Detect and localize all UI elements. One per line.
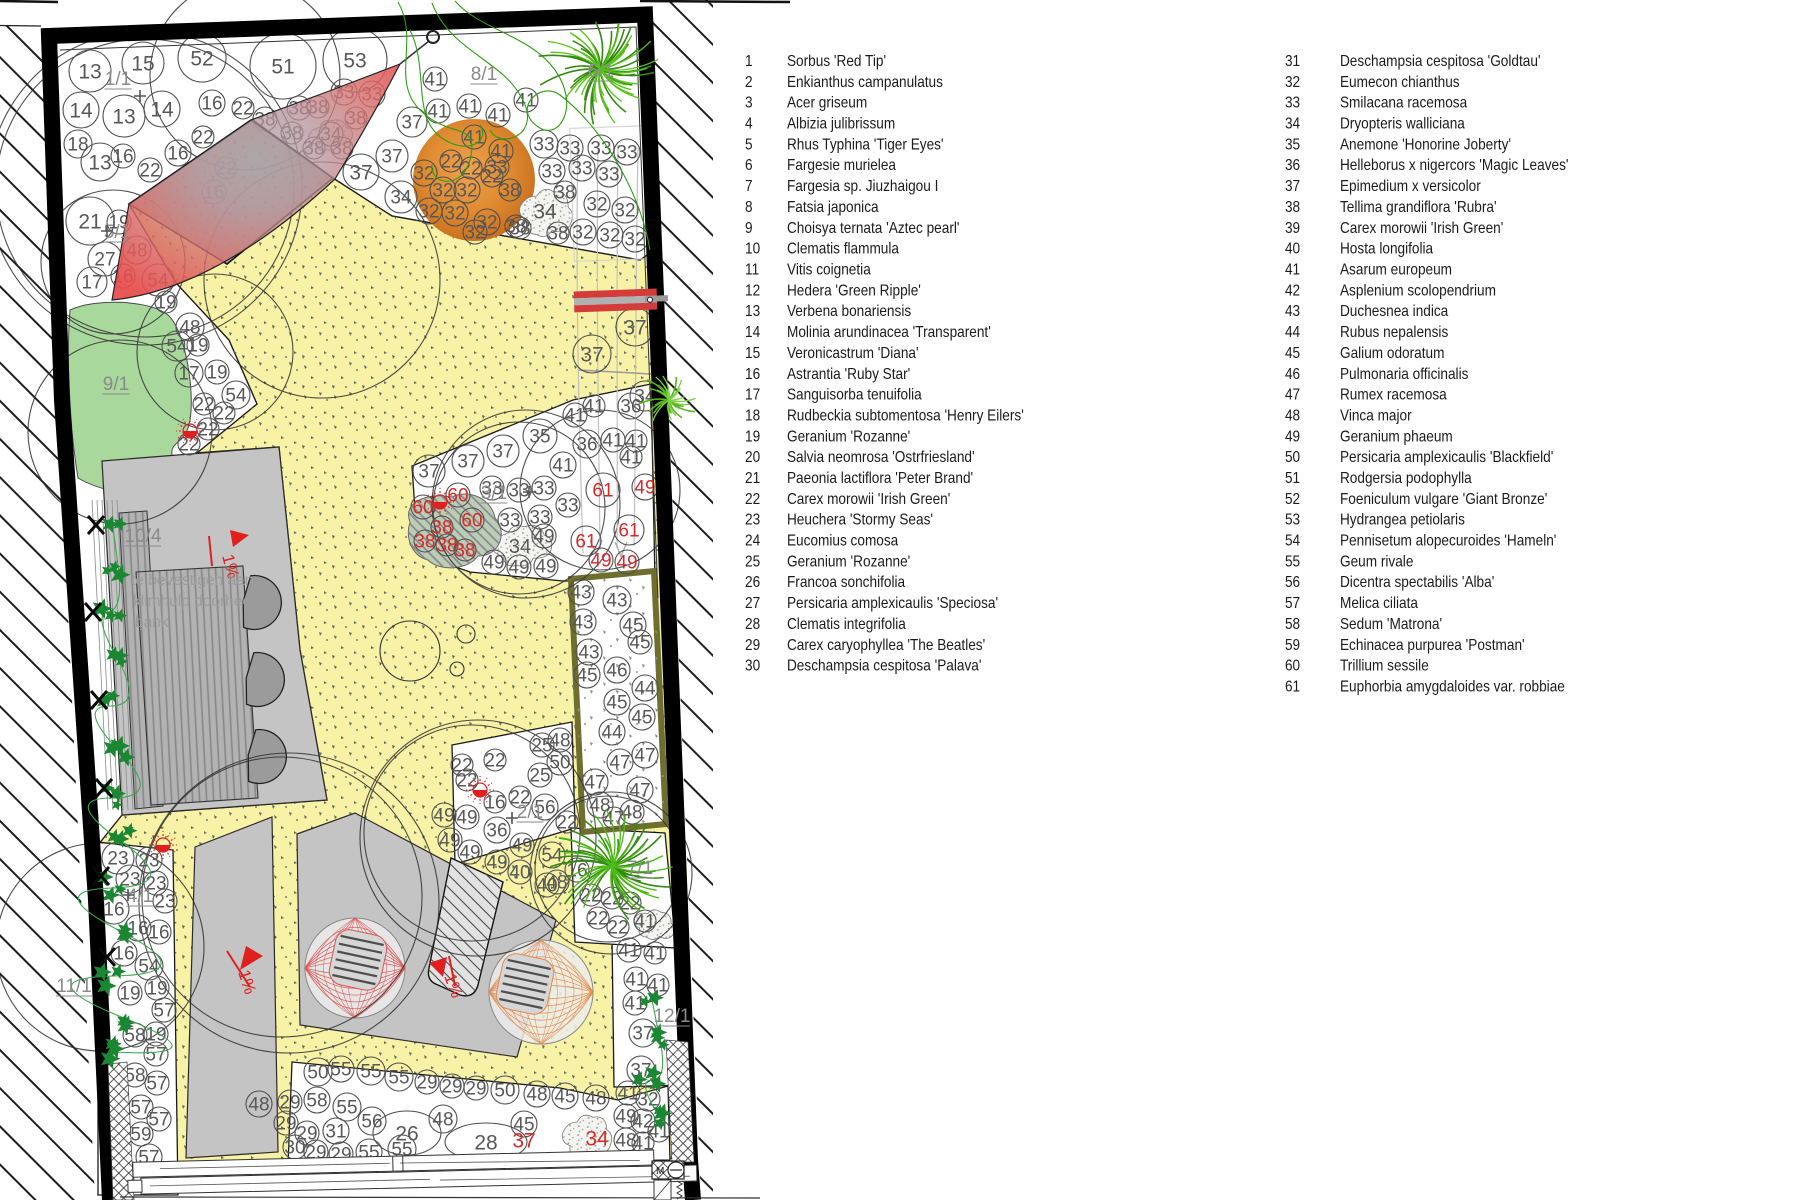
svg-text:43: 43 [1285, 303, 1300, 320]
svg-text:41: 41 [617, 1084, 638, 1105]
svg-text:13: 13 [88, 151, 111, 174]
svg-text:41: 41 [618, 941, 639, 962]
svg-text:Albizia julibrissum: Albizia julibrissum [787, 116, 895, 133]
svg-text:43: 43 [606, 591, 627, 612]
svg-text:Clematis integrifolia: Clematis integrifolia [787, 616, 907, 633]
svg-text:19: 19 [187, 336, 208, 357]
svg-text:Hedera 'Green Ripple': Hedera 'Green Ripple' [787, 283, 921, 300]
svg-text:55: 55 [330, 1060, 351, 1081]
svg-text:32: 32 [599, 226, 620, 247]
svg-text:19: 19 [745, 429, 760, 446]
svg-text:22: 22 [607, 918, 628, 939]
svg-text:7: 7 [745, 178, 753, 195]
svg-text:32: 32 [614, 201, 635, 222]
svg-text:16: 16 [167, 144, 188, 165]
svg-text:57: 57 [1285, 595, 1300, 612]
svg-text:11: 11 [745, 262, 759, 279]
svg-text:Galium odoratum: Galium odoratum [1340, 345, 1444, 362]
svg-text:36: 36 [576, 435, 597, 456]
svg-text:Geranium 'Rozanne': Geranium 'Rozanne' [787, 429, 911, 446]
svg-text:43: 43 [578, 643, 599, 664]
svg-text:32: 32 [572, 223, 593, 244]
svg-text:17: 17 [81, 273, 102, 294]
svg-text:49: 49 [433, 806, 454, 827]
svg-text:49: 49 [483, 553, 504, 574]
svg-text:Trillium sessile: Trillium sessile [1340, 658, 1429, 675]
svg-text:14: 14 [150, 98, 174, 121]
svg-text:Duchesnea indica: Duchesnea indica [1340, 303, 1449, 320]
svg-text:22: 22 [139, 161, 160, 182]
svg-text:37: 37 [349, 161, 372, 184]
svg-text:55: 55 [336, 1098, 357, 1119]
svg-text:Veronicastrum 'Diana': Veronicastrum 'Diana' [787, 345, 919, 362]
svg-text:42: 42 [1285, 283, 1300, 300]
svg-text:15: 15 [131, 52, 154, 75]
svg-text:Francoa sonchifolia: Francoa sonchifolia [787, 574, 906, 591]
svg-text:36: 36 [1285, 157, 1300, 174]
svg-text:Verbena bonariensis: Verbena bonariensis [787, 303, 911, 320]
svg-text:18: 18 [67, 135, 88, 156]
svg-text:29: 29 [465, 1079, 486, 1100]
svg-text:25: 25 [529, 766, 550, 787]
svg-text:32: 32 [444, 204, 465, 225]
svg-text:7/1: 7/1 [627, 858, 653, 879]
svg-text:33: 33 [1285, 95, 1300, 112]
svg-text:32: 32 [586, 195, 607, 216]
svg-text:41: 41 [1285, 262, 1300, 279]
svg-text:Geum rivale: Geum rivale [1340, 554, 1413, 571]
svg-text:Pennisetum alopecuroides 'Hame: Pennisetum alopecuroides 'Hameln' [1340, 533, 1557, 550]
svg-text:46: 46 [1285, 366, 1300, 383]
svg-text:Rudbeckia subtomentosa 'Henry: Rudbeckia subtomentosa 'Henry Eilers' [787, 408, 1024, 425]
svg-text:Echinacea purpurea 'Postman': Echinacea purpurea 'Postman' [1340, 637, 1525, 654]
svg-text:37: 37 [418, 462, 439, 483]
svg-text:56: 56 [361, 1112, 382, 1133]
svg-text:49: 49 [1285, 429, 1300, 446]
svg-text:18: 18 [745, 408, 760, 425]
svg-text:bank: bank [135, 614, 169, 631]
svg-text:22: 22 [440, 152, 461, 173]
svg-text:56: 56 [1285, 574, 1300, 591]
svg-text:47: 47 [603, 809, 624, 830]
svg-text:50: 50 [307, 1063, 328, 1084]
svg-text:10/4: 10/4 [125, 526, 162, 547]
svg-text:Eumecon chianthus: Eumecon chianthus [1340, 74, 1460, 91]
svg-text:44: 44 [601, 723, 623, 744]
svg-text:49: 49 [533, 527, 554, 548]
svg-text:49: 49 [511, 836, 532, 857]
svg-text:Tellima grandiflora 'Rubra': Tellima grandiflora 'Rubra' [1340, 199, 1497, 216]
svg-text:32: 32 [418, 202, 439, 223]
svg-text:Carex morowii 'Irish Green': Carex morowii 'Irish Green' [787, 491, 951, 508]
svg-text:Helleborus x nigercors 'Magic: Helleborus x nigercors 'Magic Leaves' [1340, 157, 1569, 174]
svg-text:Molinia arundinacea 'Transpare: Molinia arundinacea 'Transparent' [787, 324, 991, 341]
svg-text:53: 53 [343, 49, 366, 72]
svg-text:20: 20 [745, 449, 760, 466]
svg-text:48: 48 [1285, 408, 1300, 425]
svg-text:38: 38 [1285, 199, 1300, 216]
svg-text:14: 14 [69, 99, 93, 122]
svg-text:60: 60 [1285, 658, 1300, 675]
svg-text:33: 33 [529, 508, 550, 529]
svg-text:Deschampsia cespitosa 'Palava': Deschampsia cespitosa 'Palava' [787, 658, 982, 675]
svg-text:22: 22 [484, 751, 505, 772]
svg-text:60: 60 [461, 511, 482, 532]
svg-text:22: 22 [556, 813, 577, 834]
svg-text:8: 8 [745, 199, 753, 216]
svg-text:50: 50 [549, 753, 570, 774]
svg-text:22: 22 [745, 491, 760, 508]
svg-text:29: 29 [275, 1114, 296, 1135]
svg-text:28: 28 [745, 616, 760, 633]
svg-text:Asarum europeum: Asarum europeum [1340, 262, 1452, 279]
svg-text:37: 37 [1285, 178, 1300, 195]
svg-text:37: 37 [401, 113, 422, 134]
svg-text:Asplenium scolopendrium: Asplenium scolopendrium [1340, 283, 1496, 300]
svg-text:34: 34 [533, 200, 557, 223]
svg-text:Rumex racemosa: Rumex racemosa [1340, 387, 1448, 404]
svg-text:32: 32 [464, 223, 485, 244]
svg-text:34: 34 [1285, 116, 1300, 133]
svg-text:33: 33 [559, 139, 580, 160]
svg-text:41: 41 [427, 102, 448, 123]
svg-text:16: 16 [113, 944, 134, 965]
svg-text:35: 35 [529, 427, 550, 448]
svg-text:Vitis coignetia: Vitis coignetia [787, 262, 872, 279]
svg-text:Heuchera 'Stormy Seas': Heuchera 'Stormy Seas' [787, 512, 933, 529]
svg-text:17: 17 [745, 387, 760, 404]
svg-text:48: 48 [432, 1110, 453, 1131]
svg-text:29: 29 [279, 1093, 300, 1114]
svg-text:29: 29 [416, 1073, 437, 1094]
svg-text:Vinca major: Vinca major [1340, 408, 1412, 425]
svg-text:34: 34 [509, 536, 531, 558]
svg-text:23: 23 [107, 849, 128, 870]
svg-text:11/1: 11/1 [56, 976, 92, 997]
svg-text:Rhus Typhina 'Tiger Eyes': Rhus Typhina 'Tiger Eyes' [787, 137, 944, 154]
svg-text:41: 41 [634, 912, 655, 933]
svg-text:Persicaria amplexicaulis 'Blac: Persicaria amplexicaulis 'Blackfield' [1340, 449, 1554, 466]
svg-text:Fatsia japonica: Fatsia japonica [787, 199, 879, 216]
svg-text:33: 33 [499, 511, 520, 532]
svg-text:2: 2 [745, 74, 753, 91]
svg-text:19: 19 [155, 293, 176, 314]
svg-text:Geranium 'Rozanne': Geranium 'Rozanne' [787, 554, 911, 571]
svg-text:Eucomius comosa: Eucomius comosa [787, 533, 899, 550]
svg-text:Rodgersia podophylla: Rodgersia podophylla [1340, 470, 1473, 487]
svg-text:16: 16 [745, 366, 760, 383]
svg-text:40: 40 [509, 863, 530, 884]
svg-text:48: 48 [248, 1095, 269, 1116]
svg-text:9: 9 [745, 220, 753, 237]
svg-text:22: 22 [193, 395, 214, 416]
svg-text:22: 22 [460, 159, 481, 180]
svg-text:49: 49 [590, 551, 611, 572]
svg-text:44: 44 [634, 679, 656, 700]
svg-text:33: 33 [533, 135, 554, 156]
svg-text:37: 37 [580, 343, 603, 366]
svg-text:19: 19 [119, 984, 140, 1005]
svg-text:12: 12 [745, 283, 760, 300]
svg-text:58: 58 [1285, 616, 1300, 633]
svg-text:38: 38 [509, 219, 530, 240]
svg-text:57: 57 [146, 1074, 167, 1095]
svg-text:60: 60 [447, 486, 468, 507]
svg-text:34: 34 [390, 188, 412, 209]
svg-text:48: 48 [546, 873, 567, 894]
svg-text:57: 57 [153, 1001, 174, 1022]
svg-text:23: 23 [154, 892, 175, 913]
svg-text:49: 49 [616, 553, 637, 574]
svg-text:41: 41 [552, 456, 573, 477]
svg-text:Choisya ternata 'Aztec pearl': Choisya ternata 'Aztec pearl' [787, 220, 960, 237]
svg-text:45: 45 [576, 666, 597, 687]
svg-text:Pulmonaria officinalis: Pulmonaria officinalis [1340, 366, 1468, 383]
svg-text:50: 50 [1285, 449, 1300, 466]
svg-text:38: 38 [454, 541, 475, 562]
svg-text:49: 49 [456, 808, 477, 829]
svg-text:45: 45 [631, 708, 652, 729]
svg-text:61: 61 [575, 532, 596, 553]
svg-text:47: 47 [629, 781, 650, 802]
svg-text:12/1: 12/1 [654, 1006, 691, 1027]
svg-text:32: 32 [624, 230, 645, 251]
svg-text:13: 13 [78, 60, 101, 83]
svg-text:Sedum 'Matrona': Sedum 'Matrona' [1340, 616, 1442, 633]
svg-text:34: 34 [585, 1127, 609, 1150]
svg-text:45: 45 [554, 1087, 575, 1108]
svg-text:Clematis flammula: Clematis flammula [787, 241, 900, 258]
svg-text:22: 22 [232, 99, 253, 120]
svg-text:Smilacana racemosa: Smilacana racemosa [1340, 95, 1468, 112]
svg-text:44: 44 [1285, 324, 1300, 341]
svg-text:Carex caryophyllea 'The Beatle: Carex caryophyllea 'The Beatles' [787, 637, 985, 654]
svg-text:33: 33 [508, 481, 529, 502]
svg-text:Acer griseum: Acer griseum [787, 95, 867, 112]
svg-text:47: 47 [584, 773, 605, 794]
svg-text:61: 61 [592, 481, 613, 502]
svg-text:38: 38 [414, 532, 435, 553]
svg-text:49: 49 [459, 843, 480, 864]
svg-text:Carex morowii 'Irish Green': Carex morowii 'Irish Green' [1340, 220, 1504, 237]
svg-text:Astrantia 'Ruby Star': Astrantia 'Ruby Star' [787, 366, 910, 383]
svg-text:22: 22 [192, 128, 213, 149]
svg-text:Fargesie murielea: Fargesie murielea [787, 157, 897, 174]
svg-text:19: 19 [206, 363, 227, 384]
svg-text:21: 21 [745, 470, 760, 487]
svg-text:49: 49 [486, 853, 507, 874]
svg-text:2/1: 2/1 [517, 802, 543, 823]
svg-text:41: 41 [424, 70, 445, 91]
svg-text:Anemone 'Honorine Joberty': Anemone 'Honorine Joberty' [1340, 137, 1511, 154]
svg-text:57: 57 [145, 1045, 166, 1066]
svg-text:41: 41 [625, 970, 646, 991]
svg-text:Geranium phaeum: Geranium phaeum [1340, 429, 1453, 446]
svg-text:49: 49 [634, 478, 655, 499]
svg-text:41: 41 [458, 97, 479, 118]
svg-text:37: 37 [512, 1129, 535, 1152]
svg-text:Persicaria amplexicaulis 'Spec: Persicaria amplexicaulis 'Speciosa' [787, 595, 998, 612]
svg-text:9/1: 9/1 [103, 374, 129, 395]
svg-text:21: 21 [78, 210, 101, 233]
svg-text:13: 13 [745, 303, 760, 320]
svg-text:54: 54 [1285, 533, 1300, 550]
svg-text:47: 47 [609, 753, 630, 774]
svg-text:1: 1 [745, 53, 753, 70]
svg-text:61: 61 [1285, 679, 1300, 696]
svg-text:51: 51 [1285, 470, 1300, 487]
svg-text:51: 51 [271, 55, 294, 78]
svg-text:26: 26 [745, 574, 760, 591]
svg-text:4: 4 [745, 116, 753, 133]
svg-text:41: 41 [564, 406, 585, 427]
svg-text:37: 37 [623, 316, 646, 339]
svg-text:26: 26 [395, 1122, 418, 1145]
svg-text:4/1: 4/1 [127, 886, 153, 907]
svg-text:33: 33 [541, 162, 562, 183]
svg-text:29: 29 [441, 1077, 462, 1098]
svg-text:6/1: 6/1 [588, 61, 614, 82]
svg-text:47: 47 [634, 746, 655, 767]
svg-text:16: 16 [148, 923, 169, 944]
svg-text:41: 41 [644, 944, 665, 965]
svg-text:Sanguisorba tenuifolia: Sanguisorba tenuifolia [787, 387, 923, 404]
svg-text:43: 43 [570, 583, 591, 604]
svg-text:16: 16 [201, 94, 222, 115]
svg-text:klimhulp doorheen: klimhulp doorheen [133, 593, 260, 610]
svg-text:16: 16 [112, 147, 133, 168]
svg-text:39: 39 [1285, 220, 1300, 237]
svg-text:10: 10 [745, 241, 760, 258]
svg-text:6: 6 [745, 157, 753, 174]
svg-text:49: 49 [508, 558, 529, 579]
svg-text:3: 3 [745, 95, 753, 112]
svg-text:Deschampsia cespitosa 'Goldtau: Deschampsia cespitosa 'Goldtau' [1340, 53, 1541, 70]
svg-text:49: 49 [439, 831, 460, 852]
svg-text:31: 31 [1285, 53, 1300, 70]
svg-text:24: 24 [745, 533, 760, 550]
svg-text:36: 36 [486, 821, 507, 842]
svg-text:Epimedium x versicolor: Epimedium x versicolor [1340, 178, 1481, 195]
svg-text:55: 55 [388, 1068, 409, 1089]
svg-text:48: 48 [585, 1089, 606, 1110]
svg-text:29: 29 [745, 637, 760, 654]
svg-text:te bevestigen aan: te bevestigen aan [131, 572, 253, 589]
svg-text:60: 60 [412, 498, 433, 519]
svg-text:Foeniculum vulgare 'Giant Bron: Foeniculum vulgare 'Giant Bronze' [1340, 491, 1548, 508]
svg-text:16: 16 [103, 900, 124, 921]
svg-text:58: 58 [306, 1091, 327, 1112]
svg-text:30: 30 [284, 1138, 305, 1159]
svg-text:25: 25 [745, 554, 760, 571]
svg-text:54: 54 [138, 957, 160, 978]
svg-text:Hydrangea petiolaris: Hydrangea petiolaris [1340, 512, 1465, 529]
svg-text:19: 19 [146, 979, 167, 1000]
svg-text:17: 17 [178, 364, 199, 385]
svg-text:3/1: 3/1 [481, 483, 507, 504]
svg-text:23: 23 [745, 512, 760, 529]
svg-text:32: 32 [456, 181, 477, 202]
svg-text:37: 37 [492, 442, 513, 463]
svg-text:33: 33 [557, 496, 578, 517]
svg-text:49: 49 [535, 557, 556, 578]
svg-text:46: 46 [606, 661, 627, 682]
svg-text:45: 45 [629, 633, 650, 654]
svg-text:M: M [656, 1166, 664, 1177]
svg-text:15: 15 [745, 345, 760, 362]
svg-text:52: 52 [190, 47, 213, 70]
svg-text:37: 37 [457, 452, 478, 473]
svg-text:8/1: 8/1 [471, 64, 497, 85]
svg-text:50: 50 [494, 1081, 515, 1102]
svg-text:43: 43 [572, 613, 593, 634]
svg-text:30: 30 [745, 658, 760, 675]
svg-text:53: 53 [1285, 512, 1300, 529]
svg-text:33: 33 [533, 479, 554, 500]
svg-text:1/1: 1/1 [105, 69, 131, 90]
svg-text:37: 37 [381, 147, 402, 168]
svg-text:45: 45 [1285, 345, 1300, 362]
svg-text:38: 38 [499, 181, 520, 202]
svg-text:59: 59 [1285, 637, 1300, 654]
svg-text:16: 16 [484, 793, 505, 814]
svg-text:Melica ciliata: Melica ciliata [1340, 595, 1419, 612]
svg-text:13: 13 [112, 105, 135, 128]
svg-text:Paeonia lactiflora 'Peter Bran: Paeonia lactiflora 'Peter Brand' [787, 470, 973, 487]
svg-text:55: 55 [360, 1062, 381, 1083]
svg-text:Dryopteris walliciana: Dryopteris walliciana [1340, 116, 1466, 133]
svg-text:Enkianthus campanulatus: Enkianthus campanulatus [787, 74, 943, 91]
svg-text:Rubus nepalensis: Rubus nepalensis [1340, 324, 1448, 341]
svg-text:Dicentra spectabilis 'Alba': Dicentra spectabilis 'Alba' [1340, 574, 1495, 591]
svg-text:33: 33 [616, 143, 637, 164]
svg-text:55: 55 [1285, 554, 1300, 571]
svg-text:54: 54 [166, 337, 188, 358]
svg-text:40: 40 [1285, 241, 1300, 258]
svg-text:22: 22 [587, 909, 608, 930]
svg-text:33: 33 [598, 165, 619, 186]
svg-text:35: 35 [1285, 137, 1300, 154]
svg-text:37: 37 [632, 1024, 653, 1045]
svg-text:47: 47 [1285, 387, 1300, 404]
svg-text:33: 33 [571, 159, 592, 180]
svg-text:31: 31 [325, 1122, 346, 1143]
svg-text:33: 33 [486, 158, 507, 179]
svg-text:48: 48 [526, 1085, 547, 1106]
svg-text:41: 41 [583, 397, 604, 418]
svg-text:36: 36 [620, 397, 641, 418]
svg-text:45: 45 [606, 693, 627, 714]
svg-text:28: 28 [474, 1131, 497, 1154]
svg-text:32: 32 [1285, 74, 1300, 91]
svg-text:59: 59 [130, 1125, 151, 1146]
svg-text:14: 14 [745, 324, 760, 341]
svg-text:32: 32 [432, 181, 453, 202]
svg-text:38: 38 [547, 224, 568, 245]
svg-text:5: 5 [745, 137, 753, 154]
svg-text:38: 38 [554, 183, 575, 204]
svg-text:Sorbus 'Red Tip': Sorbus 'Red Tip' [787, 53, 886, 70]
svg-text:41: 41 [620, 448, 641, 469]
svg-text:27: 27 [745, 595, 760, 612]
svg-text:Salvia neomrosa 'Ostrfriesland: Salvia neomrosa 'Ostrfriesland' [787, 449, 975, 466]
svg-text:Hosta longifolia: Hosta longifolia [1340, 241, 1434, 258]
svg-text:41: 41 [487, 106, 508, 127]
svg-text:22: 22 [580, 886, 601, 907]
svg-text:61: 61 [618, 521, 639, 542]
svg-text:52: 52 [1285, 491, 1300, 508]
svg-text:22: 22 [197, 420, 218, 441]
